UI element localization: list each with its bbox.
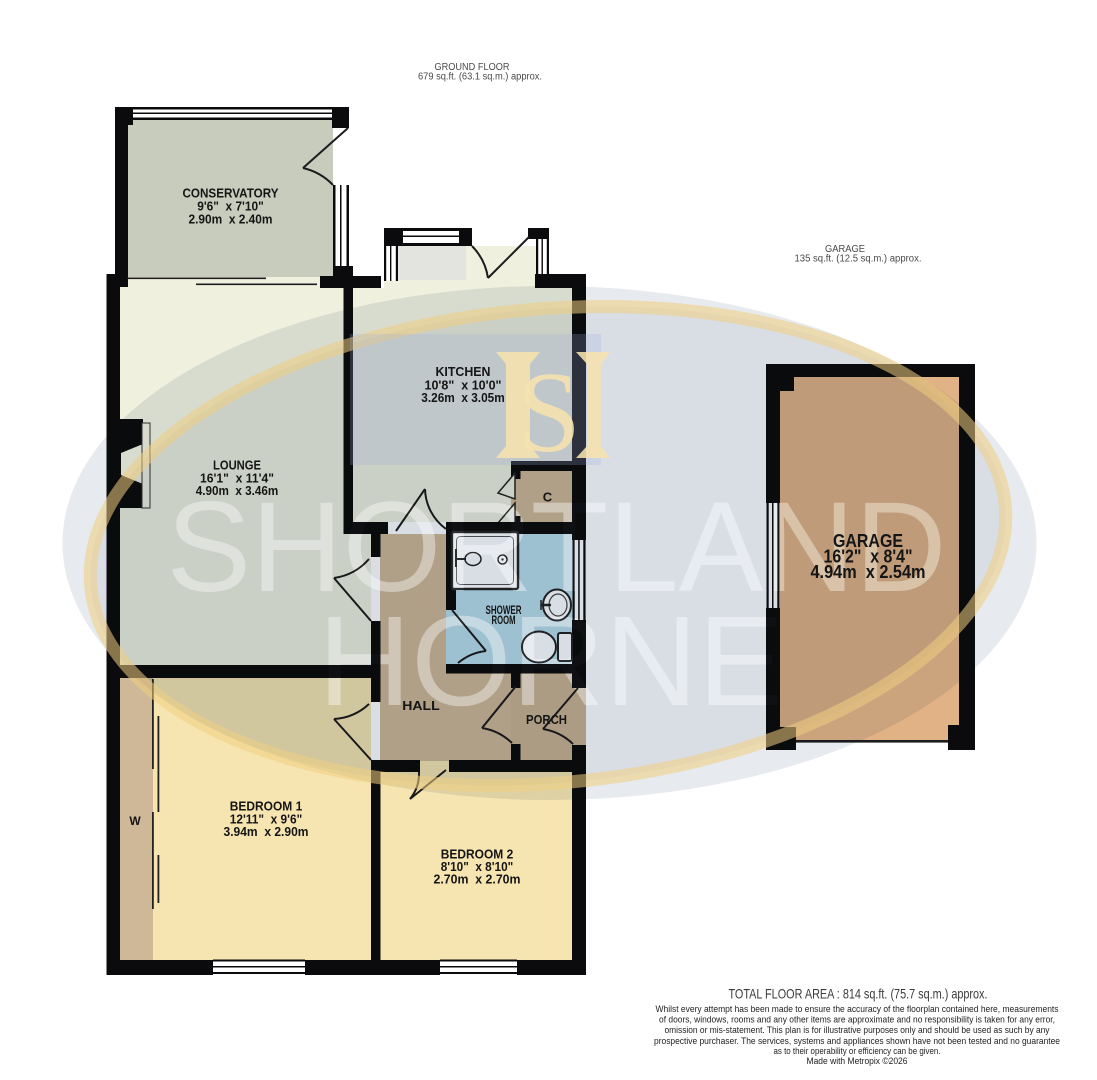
svg-text:3.94m x 2.90m: 3.94m x 2.90m	[224, 824, 309, 839]
svg-text:2.70m x 2.70m: 2.70m x 2.70m	[434, 872, 521, 887]
svg-text:HALL: HALL	[402, 698, 440, 713]
svg-text:4.94m x 2.54m: 4.94m x 2.54m	[811, 562, 926, 582]
svg-text:C: C	[543, 490, 553, 505]
svg-text:W: W	[129, 814, 141, 828]
svg-text:of doors, windows, rooms and a: of doors, windows, rooms and any other i…	[659, 1015, 1055, 1026]
svg-text:135 sq.ft. (12.5 sq.m.) approx: 135 sq.ft. (12.5 sq.m.) approx.	[795, 254, 922, 265]
svg-text:S: S	[517, 349, 581, 476]
svg-text:PORCH: PORCH	[526, 712, 567, 727]
svg-text:Whilst every attempt has been: Whilst every attempt has been made to en…	[656, 1004, 1059, 1015]
svg-text:ROOM: ROOM	[492, 613, 516, 627]
svg-text:omission or mis-statement. Thi: omission or mis-statement. This plan is …	[665, 1025, 1050, 1036]
svg-text:3.26m x 3.05m: 3.26m x 3.05m	[421, 390, 505, 405]
svg-text:TOTAL FLOOR AREA : 814 sq.ft.: TOTAL FLOOR AREA : 814 sq.ft. (75.7 sq.m…	[729, 986, 988, 1002]
svg-text:4.90m x 3.46m: 4.90m x 3.46m	[196, 483, 279, 498]
svg-text:2.90m x 2.40m: 2.90m x 2.40m	[189, 212, 273, 227]
svg-text:679 sq.ft. (63.1 sq.m.) approx: 679 sq.ft. (63.1 sq.m.) approx.	[418, 72, 542, 83]
svg-text:Made with Metropix ©2026: Made with Metropix ©2026	[807, 1056, 908, 1067]
